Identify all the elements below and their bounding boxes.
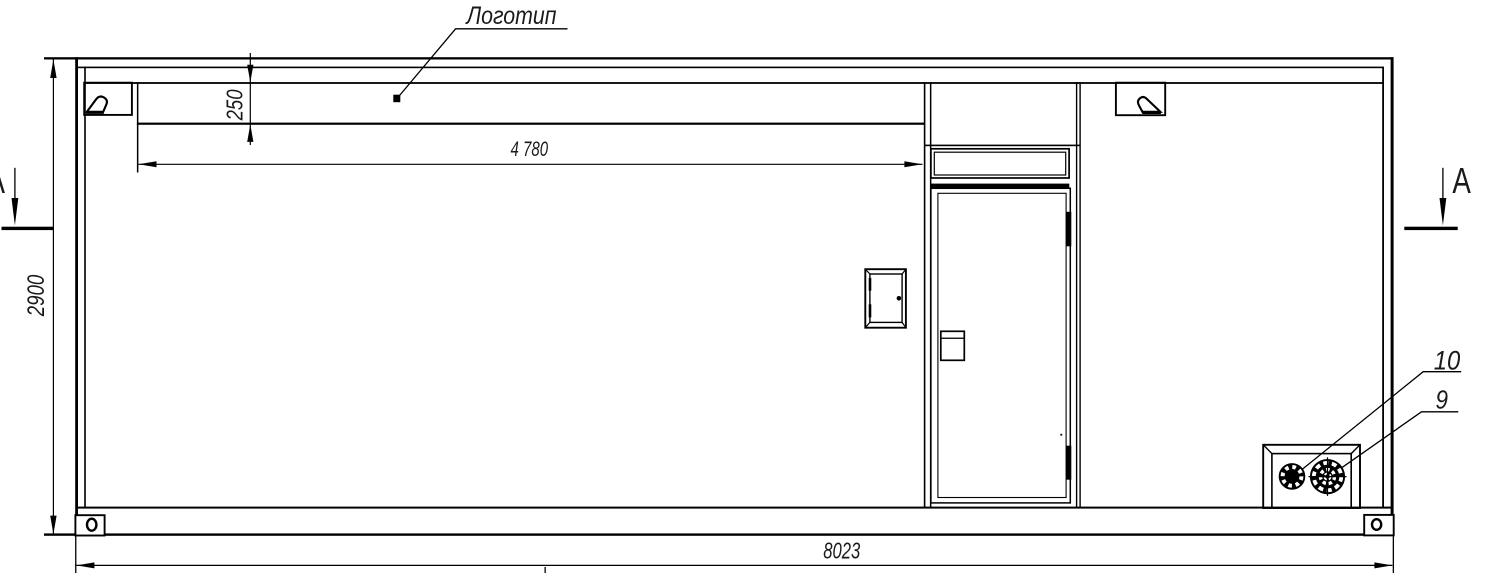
svg-text:Логотип: Логотип [465,2,557,30]
svg-text:9: 9 [1435,384,1448,414]
svg-text:8023: 8023 [823,538,860,564]
svg-text:250: 250 [221,89,247,121]
svg-text:A: A [0,160,5,201]
svg-text:2900: 2900 [23,274,50,317]
svg-text:4 780: 4 780 [511,138,549,161]
svg-text:10: 10 [1434,346,1461,376]
svg-text:A: A [1452,160,1471,201]
